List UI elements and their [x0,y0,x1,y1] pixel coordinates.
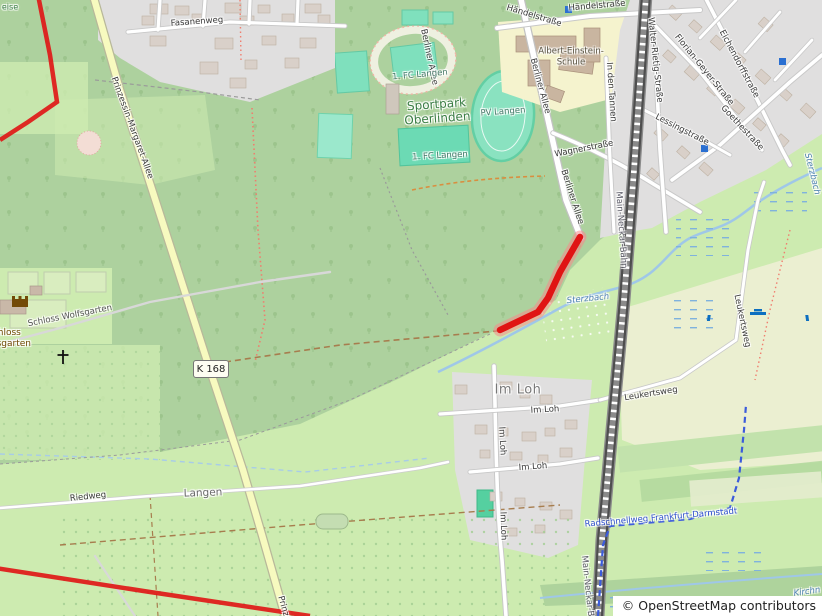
label-fasanenweg: Fasanenweg [170,15,223,29]
label-fc-langen-1: 1. FC Langen [392,68,448,83]
label-im-loh-street-4: Im Loh [498,511,509,540]
label-berliner-allee-2: Berliner Allee [528,57,552,115]
label-im-loh-place: Im Loh [495,383,542,398]
label-main-neckar-bahn-2: Main-Neckar-Bahn [579,555,597,616]
label-prinzessin-margaret-allee-2: Prinzessin-Margaret-Allee [275,595,314,616]
label-corner-partial: eise [2,2,18,11]
label-haendelstr-2: Händelstraße [568,0,626,13]
label-berliner-allee-3: Berliner Allee [558,168,585,225]
label-leukertsweg-2: Leukertsweg [732,294,753,349]
label-eichendorffstrasse: Eichendorffstraße [717,28,761,99]
label-albert-einstein-schule: Albert-Einstein-Schule [531,46,611,67]
label-fc-langen-2: 1. FC Langen [412,150,468,163]
label-schloss-wolfsgarten-place: Schloss Wolfsgarten [0,328,36,351]
label-wagnerstrasse: Wagnerstraße [554,138,614,159]
label-lessingstrasse: Lessingstraße [654,112,711,148]
label-im-loh-street-2: Im Loh [496,426,507,455]
label-main-neckar-bahn-1: Main-Neckar-Bahn [613,191,628,269]
osm-attribution-link[interactable]: © OpenStreetMap contributors [622,598,816,613]
label-florian-geyer-strasse: Florian-Geyer-Straße [672,33,735,108]
label-radschnellweg: Radschnellweg Frankfurt-Darmstadt [584,506,737,529]
map-canvas[interactable]: K 168 eiseFasanenwegHändelstraßeHändelst… [0,0,822,616]
label-walter-rietig-strasse: Walter-Rietig-Straße [646,17,665,103]
label-prinzessin-margaret-allee-1: Prinzessin-Margaret-Allee [109,76,155,181]
label-haendelstr-1: Händelstraße [505,3,562,29]
attribution-bar: © OpenStreetMap contributors [613,596,822,616]
label-berliner-allee-1: Berliner Allee [418,28,440,86]
label-riedweg: Riedweg [69,490,106,504]
label-im-loh-street-1: Im Loh [530,404,559,415]
label-sterzbach-1: Sterzbach [566,292,609,306]
label-schloss-wolfsgarten-path: Schloss Wolfsgarten [27,303,113,329]
label-goethestrasse: Goethestraße [719,103,766,152]
label-sportpark-oberlinden: Sportpark Oberlinden [400,96,474,129]
label-sterzbach-2: Sterzbach [802,152,822,196]
label-pv-langen: PV Langen [480,105,526,118]
map-labels-layer: eiseFasanenwegHändelstraßeHändelstraßeAl… [0,0,822,616]
label-im-loh-street-3: Im Loh [518,461,547,473]
label-leukertsweg-1: Leukertsweg [624,385,679,403]
label-langen-place: Langen [183,486,222,499]
label-in-den-tannen: In den Tannen [604,62,618,122]
